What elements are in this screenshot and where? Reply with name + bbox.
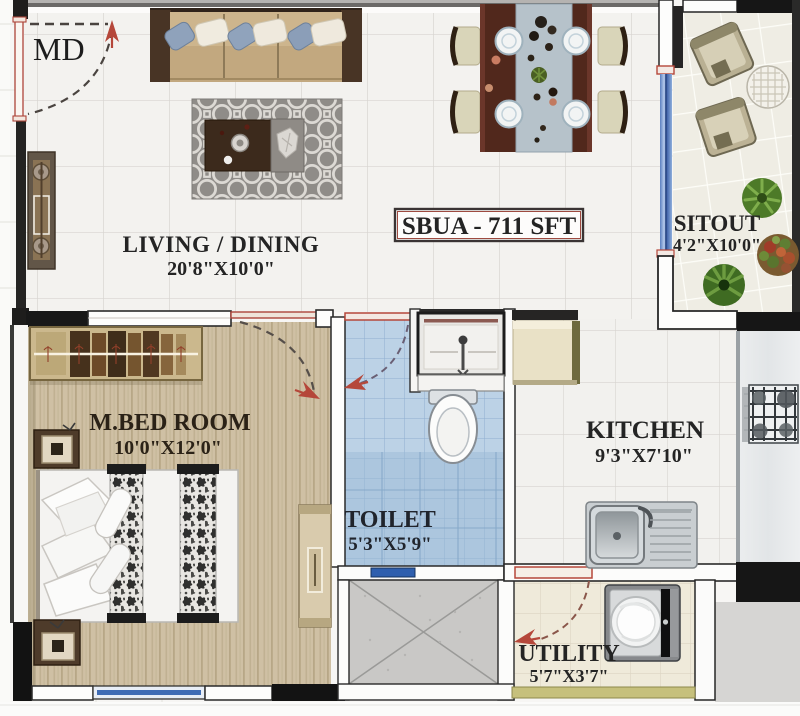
svg-text:TOILET: TOILET: [344, 507, 436, 533]
svg-text:KITCHEN: KITCHEN: [586, 417, 704, 444]
svg-text:MD: MD: [33, 31, 85, 67]
svg-text:SBUA - 711 SFT: SBUA - 711 SFT: [402, 213, 577, 240]
svg-text:5'7"X3'7": 5'7"X3'7": [530, 666, 609, 686]
svg-text:LIVING / DINING: LIVING / DINING: [123, 232, 320, 257]
svg-text:20'8"X10'0": 20'8"X10'0": [167, 258, 275, 280]
svg-text:M.BED ROOM: M.BED ROOM: [89, 410, 250, 436]
svg-text:UTILITY: UTILITY: [518, 641, 619, 667]
svg-text:9'3"X7'10": 9'3"X7'10": [595, 445, 693, 467]
svg-text:4'2"X10'0": 4'2"X10'0": [673, 235, 761, 255]
svg-text:5'3"X5'9": 5'3"X5'9": [348, 534, 431, 555]
svg-text:10'0"X12'0": 10'0"X12'0": [114, 437, 222, 459]
svg-text:SITOUT: SITOUT: [674, 211, 761, 236]
